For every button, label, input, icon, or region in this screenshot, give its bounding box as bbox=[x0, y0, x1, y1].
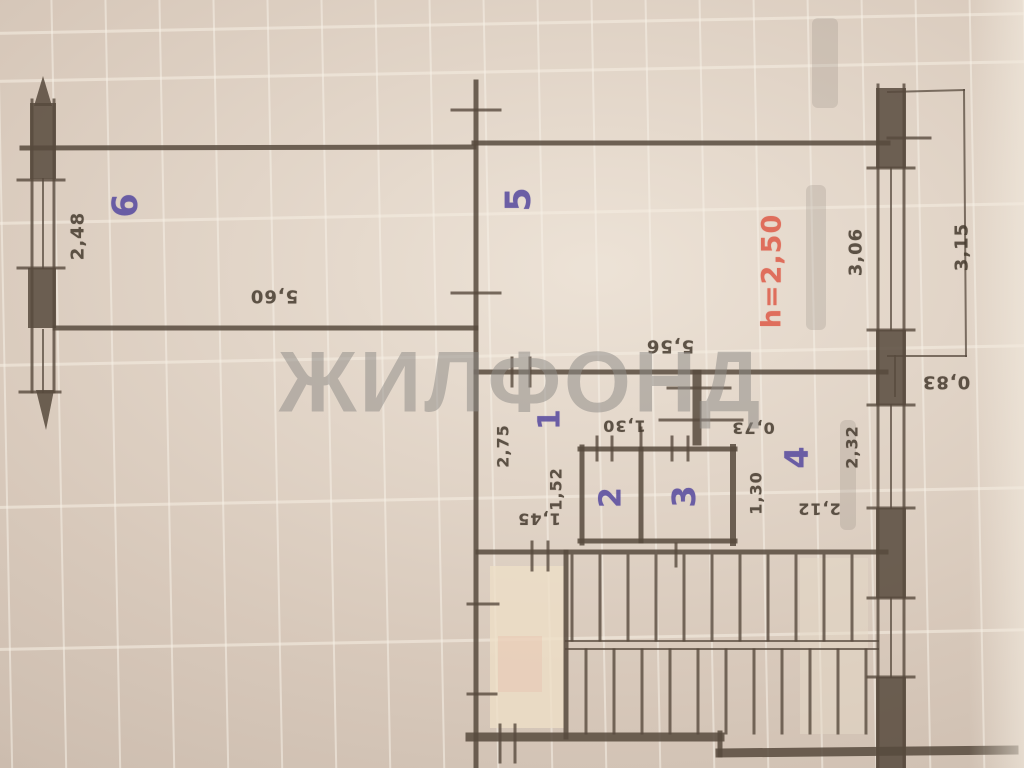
floor-plan-photo: 2,48 6 5,60 5 h=2,50 3,06 3,15 0,83 5,56… bbox=[0, 0, 1024, 768]
photo-vignette bbox=[0, 0, 1024, 768]
paper-edge-highlight bbox=[969, 0, 1024, 768]
